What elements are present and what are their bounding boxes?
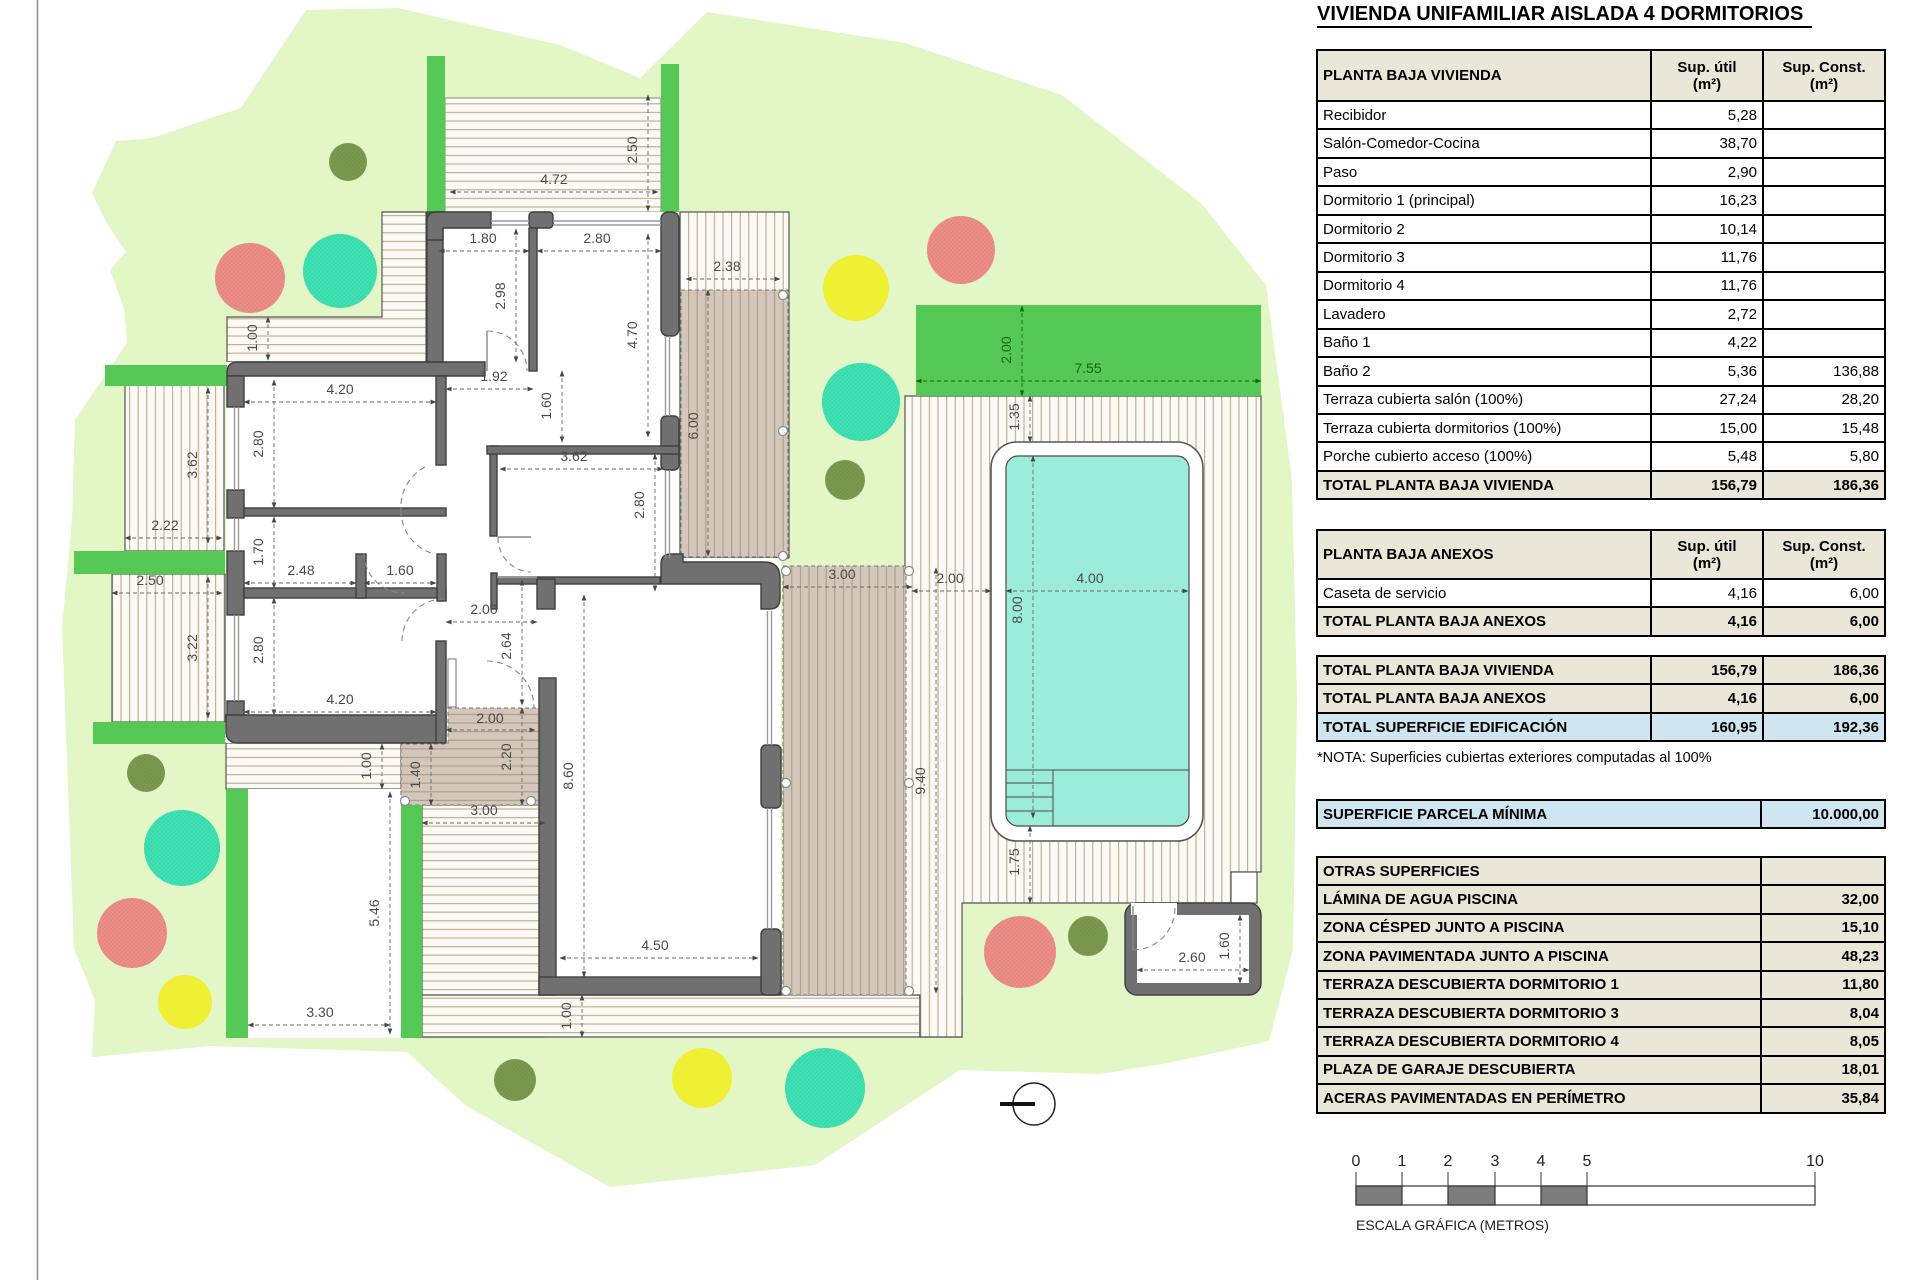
svg-text:4.20: 4.20	[326, 381, 353, 397]
svg-text:1: 1	[1398, 1153, 1407, 1170]
svg-text:2.38: 2.38	[713, 258, 740, 274]
svg-text:4.20: 4.20	[326, 691, 353, 707]
svg-text:3.00: 3.00	[828, 566, 855, 582]
svg-text:2.00: 2.00	[998, 336, 1014, 363]
svg-text:3.30: 3.30	[306, 1004, 333, 1020]
svg-text:2.80: 2.80	[583, 230, 610, 246]
svg-text:2.20: 2.20	[498, 743, 514, 770]
svg-text:3.62: 3.62	[560, 448, 587, 464]
svg-text:2.22: 2.22	[151, 517, 178, 533]
svg-text:1.00: 1.00	[244, 324, 260, 351]
svg-text:10: 10	[1806, 1153, 1824, 1170]
svg-text:8.60: 8.60	[560, 762, 576, 789]
svg-text:4.72: 4.72	[540, 171, 567, 187]
svg-text:2.50: 2.50	[136, 572, 163, 588]
svg-text:4.50: 4.50	[641, 937, 668, 953]
svg-text:2.80: 2.80	[250, 430, 266, 457]
svg-text:1.70: 1.70	[250, 538, 266, 565]
svg-text:7.55: 7.55	[1074, 360, 1101, 376]
svg-text:2.60: 2.60	[1178, 949, 1205, 965]
svg-text:5.46: 5.46	[366, 899, 382, 926]
svg-text:1.75: 1.75	[1006, 848, 1022, 875]
svg-text:1.92: 1.92	[480, 368, 507, 384]
svg-text:ESCALA GRÁFICA (METROS): ESCALA GRÁFICA (METROS)	[1356, 1217, 1549, 1233]
svg-text:2.00: 2.00	[470, 601, 497, 617]
svg-text:2.00: 2.00	[476, 710, 503, 726]
svg-text:2.98: 2.98	[492, 282, 508, 309]
svg-text:3.62: 3.62	[184, 451, 200, 478]
svg-text:2.80: 2.80	[631, 491, 647, 518]
svg-text:3.00: 3.00	[470, 802, 497, 818]
svg-text:0: 0	[1352, 1153, 1361, 1170]
svg-text:1.60: 1.60	[1216, 932, 1232, 959]
svg-text:2.00: 2.00	[936, 570, 963, 586]
svg-text:1.35: 1.35	[1006, 403, 1022, 430]
svg-text:1.00: 1.00	[558, 1002, 574, 1029]
svg-text:3.22: 3.22	[184, 634, 200, 661]
svg-text:9.40: 9.40	[912, 767, 928, 794]
svg-text:2.80: 2.80	[250, 636, 266, 663]
svg-text:6.00: 6.00	[685, 412, 701, 439]
svg-text:1.40: 1.40	[407, 761, 423, 788]
svg-text:1.00: 1.00	[358, 752, 374, 779]
svg-text:2: 2	[1444, 1153, 1453, 1170]
svg-text:1.60: 1.60	[386, 562, 413, 578]
svg-text:2.48: 2.48	[287, 562, 314, 578]
svg-text:4.00: 4.00	[1076, 570, 1103, 586]
svg-text:1.60: 1.60	[538, 392, 554, 419]
svg-text:5: 5	[1583, 1153, 1592, 1170]
svg-text:1.80: 1.80	[469, 230, 496, 246]
svg-text:8.00: 8.00	[1009, 596, 1025, 623]
svg-text:4: 4	[1537, 1153, 1546, 1170]
svg-text:2.50: 2.50	[624, 136, 640, 163]
svg-text:4.70: 4.70	[624, 321, 640, 348]
svg-text:2.64: 2.64	[498, 632, 514, 659]
svg-text:3: 3	[1491, 1153, 1500, 1170]
